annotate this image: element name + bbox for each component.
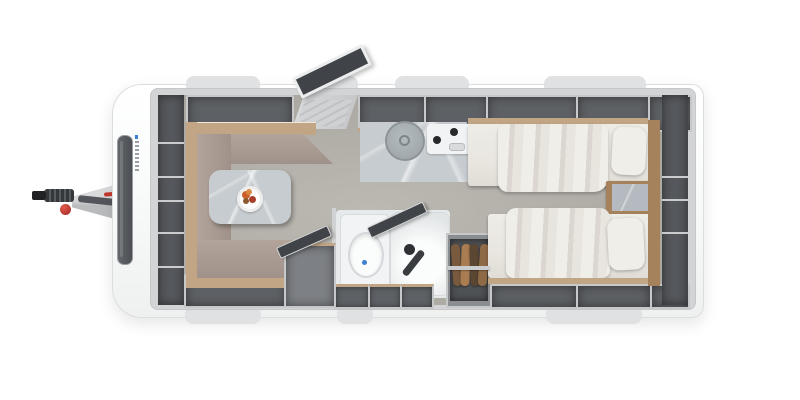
front-window-highlight (120, 141, 123, 257)
shower-head (404, 244, 415, 255)
headboard-panel (648, 120, 660, 286)
bathroom-base-cabinet (334, 284, 370, 309)
bathroom-base-cabinet (368, 284, 402, 309)
brand-text-vertical (135, 141, 139, 171)
hob-burner (433, 136, 441, 144)
floorplan-stage (0, 0, 800, 400)
bathroom-base-cabinet (400, 284, 434, 309)
pillow-top-bed (611, 126, 647, 176)
hob-control (449, 143, 465, 151)
jockey-wheel-knob (60, 204, 71, 215)
bench-backrest-left (186, 122, 197, 288)
bed-wood-rail-bottom (488, 278, 650, 284)
shelf-divider (662, 199, 688, 201)
coupling-head (44, 189, 74, 202)
bedside-chest-top (612, 184, 650, 211)
shelf-divider (662, 232, 688, 234)
duvet-bottom-bed (506, 208, 610, 278)
shelf-divider (158, 266, 184, 268)
coupling-tip (32, 191, 46, 200)
toilet-bowl (348, 232, 384, 278)
shelf-divider (158, 142, 184, 144)
shelf-divider (158, 200, 184, 202)
wardrobe-rail (448, 266, 490, 270)
front-storage-shelves (158, 95, 184, 305)
fruit (246, 189, 252, 195)
flush-button (362, 260, 367, 265)
sink-drain (399, 135, 410, 146)
duvet-top-bed (498, 124, 608, 192)
hob-burner (450, 128, 458, 136)
bed-base-locker (490, 284, 578, 309)
fruit (243, 198, 249, 204)
shelf-divider (662, 176, 688, 178)
brand-logo-mark (135, 135, 138, 139)
rear-storage-shelves (662, 95, 688, 305)
pillow-bottom-bed (607, 217, 646, 271)
shelf-divider (158, 232, 184, 234)
bed-base-locker (576, 284, 652, 309)
shelf-divider (158, 176, 184, 178)
fruit (249, 196, 256, 203)
